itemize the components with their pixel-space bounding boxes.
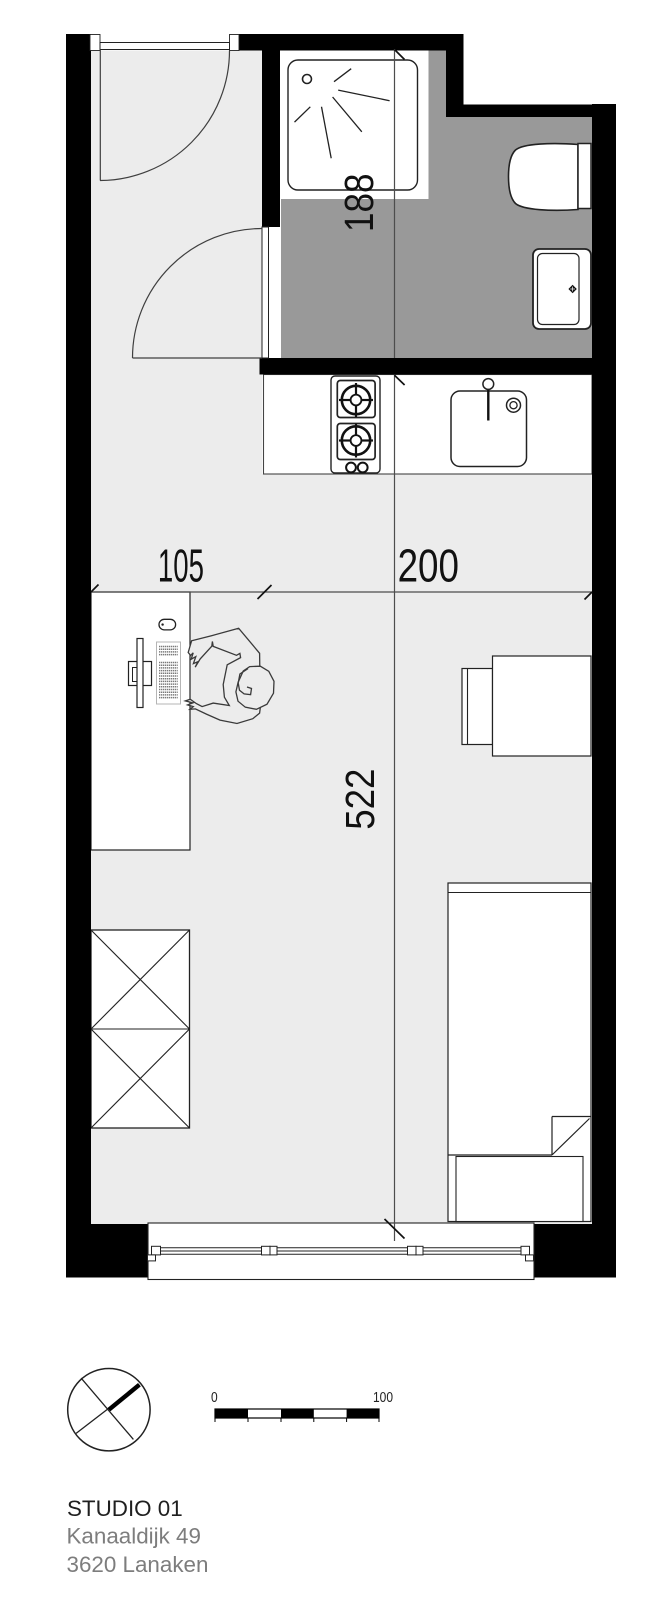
svg-text:0: 0	[211, 1389, 218, 1406]
svg-text:Kanaaldijk 49: Kanaaldijk 49	[67, 1524, 201, 1549]
svg-text:188: 188	[336, 174, 382, 232]
svg-text:522: 522	[338, 769, 383, 830]
svg-text:100: 100	[373, 1389, 393, 1406]
svg-text:200: 200	[398, 539, 459, 591]
svg-text:STUDIO 01: STUDIO 01	[67, 1496, 183, 1521]
svg-text:105: 105	[158, 541, 204, 592]
svg-text:3620 Lanaken: 3620 Lanaken	[67, 1552, 209, 1577]
